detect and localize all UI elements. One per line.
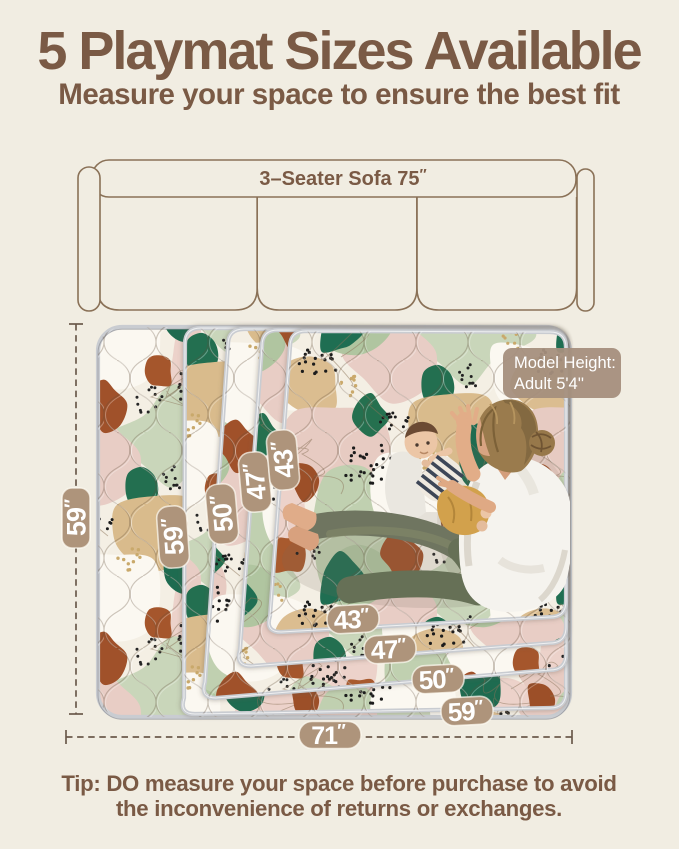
svg-text:3–Seater Sofa 75″: 3–Seater Sofa 75″ — [259, 166, 426, 190]
svg-text:5 Playmat Sizes Available: 5 Playmat Sizes Available — [37, 21, 641, 81]
svg-text:Model Height:: Model Height: — [514, 354, 616, 372]
svg-text:Measure your space to ensure t: Measure your space to ensure the best fi… — [58, 78, 620, 111]
svg-text:the inconvenience of returns o: the inconvenience of returns or exchange… — [116, 796, 562, 821]
svg-text:Tip: DO measure your space bef: Tip: DO measure your space before purcha… — [61, 771, 616, 796]
svg-text:Adult 5'4'': Adult 5'4'' — [514, 375, 584, 393]
